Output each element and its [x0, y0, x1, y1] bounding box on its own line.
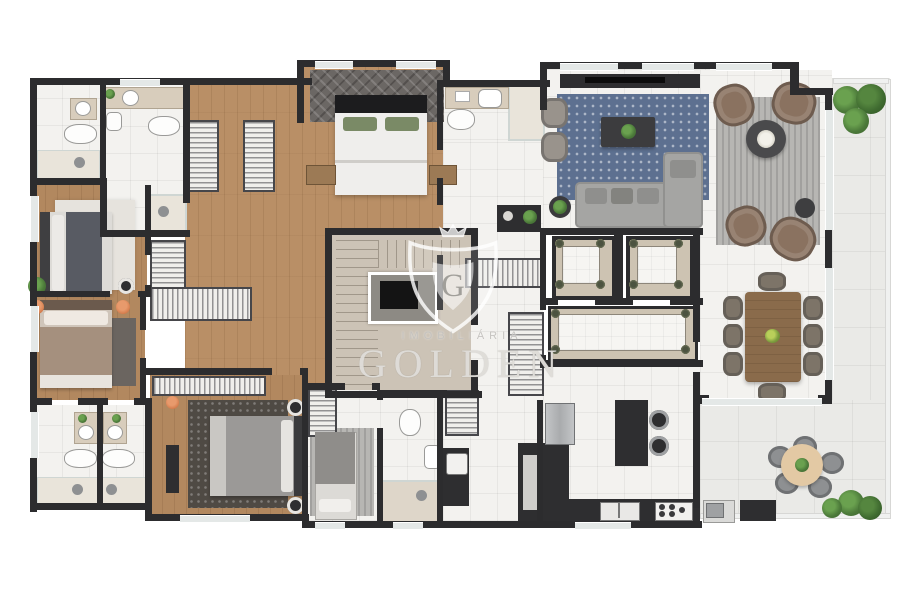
- maid-bed-pillow: [319, 499, 351, 512]
- dining-chair-r1: [803, 296, 823, 320]
- dining-chair-r2: [803, 324, 823, 348]
- wall-masterbath-west-a: [437, 80, 443, 150]
- window-maid: [315, 522, 345, 530]
- window-living-1: [560, 63, 618, 71]
- wall-stairs-north: [325, 228, 475, 235]
- lounge-table-flowers: [757, 130, 775, 148]
- floor-plan-render: G IMOBILIÁRIA GOLDEN: [0, 0, 900, 600]
- sofa-cushion-3: [637, 188, 659, 204]
- wall-sbath-west-b: [377, 428, 383, 521]
- outdoor-chair-3: [820, 452, 844, 474]
- wall-hall-west: [437, 255, 443, 310]
- cooktop-burner-4: [669, 511, 675, 517]
- window-bath-tl: [120, 79, 160, 87]
- wall-maid-west: [302, 368, 308, 521]
- window-suite3: [180, 515, 250, 523]
- elevator-hall-ornament-br: [681, 345, 690, 354]
- closet-hall-linen: [508, 312, 544, 396]
- dining-chair-l2: [723, 324, 743, 348]
- island-stool-1: [649, 410, 669, 430]
- terrace-grill: [706, 503, 724, 518]
- master-bench-left: [306, 165, 336, 185]
- cooktop-burner-1: [659, 504, 665, 510]
- tl-bath2-plant: [105, 89, 115, 99]
- dining-chair-top: [758, 272, 786, 291]
- tl-bath2-counter: [103, 87, 185, 109]
- maid-bed-blanket: [315, 432, 355, 484]
- glass-door-dining-terrace: [825, 268, 834, 380]
- suite3-bed-foot-throw: [210, 416, 226, 496]
- service-bath-shower-head: [416, 490, 427, 501]
- master-bath-sink: [478, 89, 502, 108]
- living-armchair-2: [541, 132, 568, 162]
- master-bed-headboard: [335, 95, 427, 113]
- wall-east-door-leaf: [825, 237, 832, 265]
- lounge-side-table: [795, 198, 815, 218]
- wall-suite2-bottom-a: [30, 398, 52, 405]
- elevator-1-ornament-tl: [555, 239, 564, 248]
- island-stool-2: [649, 436, 669, 456]
- terrace-plant-br-2: [858, 496, 882, 520]
- window-suite2: [30, 306, 39, 352]
- cooktop-burner-3: [659, 511, 665, 517]
- hall-console-lamp: [503, 211, 513, 221]
- wall-living-nw: [540, 62, 547, 110]
- suite3-bed-pillows: [281, 420, 293, 492]
- bl-bath1-sink: [78, 425, 94, 440]
- suite2-bed-pillows: [44, 311, 108, 325]
- tl-bath2-shower-head: [158, 206, 169, 217]
- wall-bath-tl2-west: [100, 178, 107, 236]
- suite1-side-table: [118, 278, 134, 294]
- terrace-planter: [740, 500, 776, 521]
- glass-wall-dining-south: [702, 398, 822, 406]
- wall-bath-bl-divider: [97, 405, 103, 505]
- service-cabinet-top: [523, 455, 538, 510]
- stair-flight-north: [378, 240, 468, 268]
- bl-bath2-toilet: [102, 449, 135, 468]
- master-bed-pillow-right: [385, 117, 419, 131]
- wall-maid-north-a: [302, 383, 345, 390]
- kitchen-island: [615, 400, 648, 466]
- window-living-2: [642, 63, 694, 71]
- wall-bath-tl-divider: [100, 85, 106, 180]
- elevator-hall-ornament-tl: [551, 309, 560, 318]
- elevator-1-cab: [562, 246, 600, 284]
- window-lounge: [716, 63, 772, 71]
- outdoor-table-plant: [795, 458, 809, 472]
- stair-void: [380, 281, 418, 309]
- wall-maid-north-b: [372, 383, 380, 390]
- wall-suite1-2-divider: [30, 291, 110, 297]
- master-bed-duvet-fold: [335, 160, 427, 163]
- suite2-bed-duvet: [40, 327, 112, 375]
- master-bench-right: [429, 165, 457, 185]
- suite1-bed-duvet: [66, 212, 102, 294]
- wall-stairs-south: [325, 391, 482, 398]
- tl-bath1-sink: [75, 101, 91, 116]
- wall-master-west: [297, 60, 304, 123]
- fridge: [545, 403, 575, 445]
- wall-bottom-service: [302, 521, 702, 528]
- sofa-cushion-2: [611, 188, 633, 204]
- glass-door-lounge-terrace: [825, 110, 834, 230]
- elevator-2-cab: [637, 246, 677, 284]
- tv-screen: [585, 77, 665, 83]
- wall-elevators-south-a: [540, 298, 558, 305]
- bl-bath2-sink: [107, 425, 123, 440]
- tl-bath2-toilet: [148, 116, 180, 136]
- elevator-1-ornament-tr: [596, 239, 605, 248]
- wall-suite3-top-a: [145, 368, 272, 375]
- wall-suite2-bottom-b: [78, 398, 108, 405]
- washing-machine: [446, 453, 468, 475]
- suite1-bed-pillows: [52, 215, 64, 291]
- wardrobe-dressing-2: [243, 120, 275, 192]
- window-bath-bl: [30, 412, 39, 458]
- dining-chair-l3: [723, 352, 743, 376]
- elevator-2-ornament-tr: [674, 239, 683, 248]
- elevator-2-ornament-tl: [629, 239, 638, 248]
- wall-bath-tl1-bottom: [30, 178, 107, 185]
- kitchen-sink: [600, 502, 640, 521]
- service-bath-shower: [382, 480, 441, 521]
- tl-bath2-sink: [122, 90, 139, 106]
- wall-masterbath-top: [440, 80, 550, 87]
- window-service-bath: [393, 522, 423, 530]
- suite3-flower: [166, 396, 179, 409]
- master-bath-tray: [455, 91, 470, 102]
- bl-bath1-shower-head: [72, 484, 83, 495]
- service-bath-toilet: [399, 409, 421, 436]
- tl-bath2-bidet: [106, 112, 122, 131]
- living-side-table-plant: [553, 200, 567, 214]
- elevator-2-ornament-br: [674, 280, 683, 289]
- dining-chair-l1: [723, 296, 743, 320]
- sofa-cushion-4: [670, 160, 696, 178]
- wall-dining-west-b: [693, 372, 700, 508]
- tl-bath1-shower-head: [74, 157, 85, 168]
- wall-elevator-divider: [614, 232, 623, 298]
- cooktop-burner-2: [669, 504, 675, 510]
- elevator-hall-ornament-tr: [681, 309, 690, 318]
- wall-bath-bl-bottom: [30, 503, 152, 510]
- kitchen-sink-divider: [618, 503, 620, 518]
- suite3-dresser: [166, 445, 179, 493]
- wall-stairs-west: [325, 228, 332, 398]
- tl-bath1-shower: [37, 150, 100, 180]
- elevator-hall-floor: [558, 314, 686, 351]
- elevator-2-ornament-bl: [629, 280, 638, 289]
- master-bed-pillow-left: [343, 117, 377, 131]
- hall-console-plant: [523, 210, 537, 224]
- elevator-hall-ornament-bl: [551, 345, 560, 354]
- cooktop-burner-5: [679, 507, 685, 513]
- window-suite1: [30, 196, 39, 242]
- suite2-bed-foot: [40, 375, 112, 388]
- sofa-cushion-1: [585, 188, 607, 204]
- wall-bath-bl-east: [145, 398, 152, 510]
- wardrobe-dressing-1: [187, 120, 219, 192]
- bl-bath2-shower-head: [106, 484, 117, 495]
- wall-stairs-east-b: [471, 360, 478, 398]
- suite2-bed-headboard: [40, 300, 112, 310]
- wall-bath-tl2-east: [183, 83, 190, 203]
- wall-kitchen-west: [537, 400, 543, 521]
- wall-sbath-east: [437, 390, 443, 521]
- wall-elevators-south-b: [595, 298, 633, 305]
- suite2-flower-right: [116, 300, 130, 314]
- wall-lounge-ne: [790, 88, 833, 95]
- wall-suite2-east-a: [140, 297, 146, 330]
- living-coffee-table-plant: [621, 124, 636, 139]
- dining-centerpiece: [765, 329, 780, 343]
- wall-suite2-east-b: [140, 358, 146, 400]
- bl-bath1-toilet: [64, 449, 97, 468]
- dining-chair-r3: [803, 352, 823, 376]
- elevator-1-ornament-bl: [555, 280, 564, 289]
- tl-bath1-toilet: [64, 124, 97, 144]
- terrace-railing-top: [833, 78, 889, 84]
- wall-top-west: [30, 78, 312, 85]
- window-master-1: [315, 61, 353, 69]
- wardrobe-dressing-south: [150, 287, 252, 321]
- kitchen-counter-west: [543, 443, 569, 503]
- master-bath-toilet: [447, 109, 475, 130]
- wall-suite1-east-a: [145, 185, 151, 255]
- window-kitchen: [575, 522, 631, 530]
- window-master-2: [396, 61, 436, 69]
- elevator-1-ornament-br: [596, 280, 605, 289]
- wall-dining-west-a: [693, 228, 700, 342]
- wall-masterbath-west-b: [437, 178, 443, 205]
- bl-bath1-vanity-plant: [78, 414, 87, 423]
- terrace-plant-tr-3: [843, 108, 869, 134]
- terrace-plant-br-3: [822, 498, 842, 518]
- terrace-railing-right: [885, 79, 891, 518]
- wall-elevator-hall-south: [540, 360, 703, 367]
- bl-bath2-vanity-plant: [112, 414, 121, 423]
- wardrobe-suite3: [152, 376, 266, 396]
- wall-stairs-east-a: [471, 228, 478, 325]
